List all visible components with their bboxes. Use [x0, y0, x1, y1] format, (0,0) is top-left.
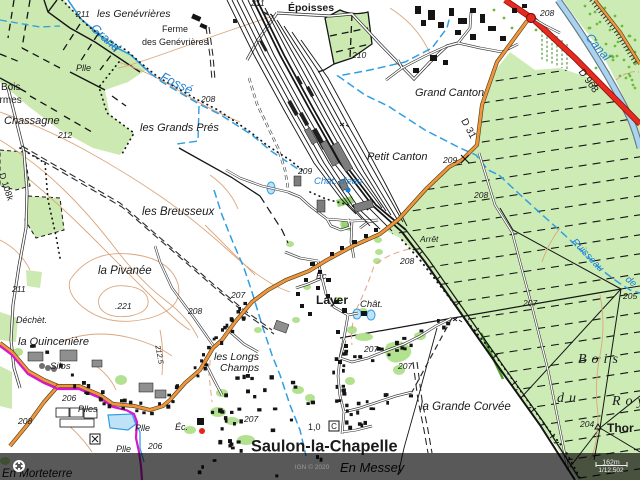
svg-text:Arrêt: Arrêt [419, 234, 439, 244]
svg-text:Roy: Roy [611, 394, 640, 409]
svg-text:211: 211 [11, 284, 26, 294]
svg-text:Bois: Bois [1, 82, 20, 93]
svg-text:IGN © 2020: IGN © 2020 [295, 463, 330, 471]
svg-text:206: 206 [147, 441, 162, 451]
svg-text:Silos: Silos [50, 361, 71, 372]
svg-text:210: 210 [351, 50, 366, 60]
svg-text:Plle: Plle [116, 444, 131, 454]
svg-text:les Breusseux: les Breusseux [142, 206, 215, 218]
svg-text:1,0: 1,0 [308, 422, 321, 432]
svg-text:204: 204 [579, 419, 594, 429]
svg-text:Thor: Thor [607, 421, 634, 435]
svg-text:la Grande Corvée: la Grande Corvée [420, 401, 511, 413]
svg-text:les Genévrières: les Genévrières [97, 8, 171, 20]
svg-text:208: 208 [539, 8, 554, 18]
svg-text:Chât. d'eau: Chât. d'eau [314, 176, 363, 187]
svg-text:Éc.: Éc. [316, 271, 329, 281]
svg-text:la Pivanée: la Pivanée [98, 265, 152, 277]
svg-text:208: 208 [187, 306, 202, 316]
svg-text:207: 207 [243, 414, 258, 424]
svg-text:205: 205 [622, 291, 637, 301]
svg-text:207: 207 [230, 290, 245, 300]
svg-text:Chât.: Chât. [360, 299, 383, 310]
svg-text:Plle: Plle [76, 63, 91, 73]
svg-text:208: 208 [200, 94, 215, 104]
svg-text:Époisses: Époisses [288, 1, 334, 14]
svg-text:208: 208 [399, 256, 414, 266]
svg-text:206: 206 [61, 393, 76, 403]
svg-text:armes: armes [0, 95, 22, 106]
svg-text:Chassagne: Chassagne [4, 115, 60, 127]
svg-text:Plles: Plles [78, 404, 98, 414]
svg-text:la Quincenière: la Quincenière [18, 336, 89, 348]
svg-text:207: 207 [397, 361, 412, 371]
svg-text:1/12,502: 1/12,502 [598, 467, 624, 474]
svg-text:du: du [557, 391, 581, 406]
svg-text:Champs: Champs [220, 362, 260, 374]
svg-text:209: 209 [297, 166, 312, 176]
svg-text:207: 207 [363, 344, 378, 354]
svg-text:.221: .221 [115, 301, 132, 311]
svg-text:207: 207 [522, 298, 537, 308]
svg-text:Plle: Plle [135, 423, 150, 433]
svg-text:209: 209 [442, 155, 457, 165]
svg-text:Bois: Bois [578, 352, 623, 367]
svg-text:Saulon-la-Chapelle: Saulon-la-Chapelle [251, 438, 398, 456]
svg-text:Petit Canton: Petit Canton [367, 151, 428, 163]
svg-text:Layer: Layer [316, 293, 348, 307]
svg-text:212: 212 [57, 130, 72, 140]
svg-text:211: 211 [250, 0, 265, 8]
svg-text:Déchèt.: Déchèt. [16, 315, 47, 325]
svg-text:des Genévrières: des Genévrières [142, 37, 209, 47]
svg-text:C: C [331, 422, 337, 431]
svg-text:208: 208 [473, 190, 488, 200]
svg-text:Ferme: Ferme [162, 24, 188, 34]
svg-text:Éc.: Éc. [175, 422, 188, 432]
svg-text:Grand Canton: Grand Canton [415, 87, 484, 99]
svg-text:208: 208 [17, 416, 32, 426]
svg-text:211: 211 [75, 9, 90, 19]
svg-text:les Grands Prés: les Grands Prés [140, 122, 219, 134]
